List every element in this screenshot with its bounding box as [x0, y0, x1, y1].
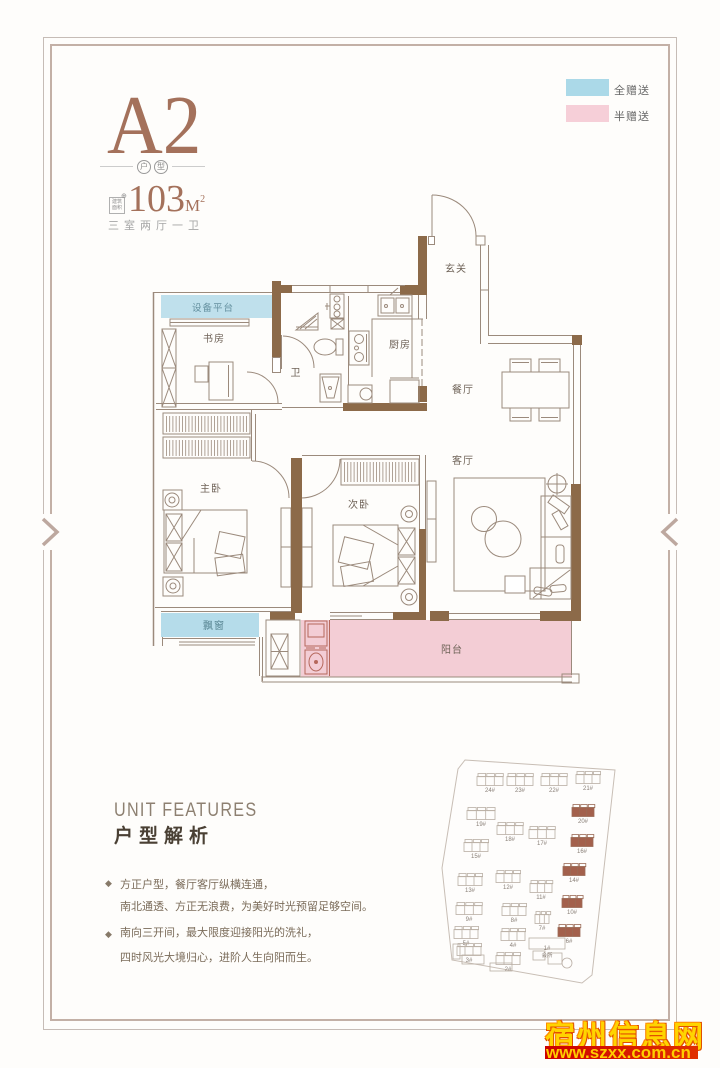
svg-text:4#: 4#: [510, 943, 517, 949]
svg-text:2#: 2#: [505, 967, 512, 973]
svg-text:15#: 15#: [471, 854, 482, 860]
svg-text:19#: 19#: [476, 822, 487, 828]
svg-text:会所: 会所: [541, 951, 553, 959]
svg-text:22#: 22#: [549, 788, 560, 794]
svg-text:8#: 8#: [511, 918, 518, 924]
svg-text:餐厅: 餐厅: [452, 383, 474, 396]
svg-text:主卧: 主卧: [200, 482, 222, 495]
svg-text:飘窗: 飘窗: [203, 619, 225, 632]
svg-text:9#: 9#: [466, 917, 473, 923]
svg-text:16#: 16#: [577, 849, 588, 855]
svg-text:卫: 卫: [291, 368, 302, 379]
svg-text:玄关: 玄关: [445, 262, 467, 275]
svg-text:24#: 24#: [485, 788, 496, 794]
svg-text:20#: 20#: [578, 819, 589, 825]
svg-text:客厅: 客厅: [452, 454, 474, 467]
svg-text:次卧: 次卧: [348, 498, 370, 511]
svg-text:厨房: 厨房: [389, 338, 411, 351]
svg-text:3#: 3#: [466, 958, 473, 964]
svg-text:设备平台: 设备平台: [192, 302, 234, 314]
svg-text:7#: 7#: [539, 926, 546, 932]
svg-text:13#: 13#: [465, 888, 476, 894]
svg-text:17#: 17#: [537, 841, 548, 847]
svg-text:书房: 书房: [203, 332, 225, 345]
svg-text:14#: 14#: [569, 878, 580, 884]
svg-text:6#: 6#: [566, 939, 573, 945]
svg-text:11#: 11#: [536, 895, 546, 901]
svg-text:21#: 21#: [583, 786, 594, 792]
svg-text:10#: 10#: [567, 910, 578, 916]
svg-text:12#: 12#: [503, 885, 514, 891]
svg-text:18#: 18#: [505, 837, 516, 843]
svg-text:阳台: 阳台: [441, 643, 463, 656]
svg-text:23#: 23#: [515, 788, 526, 794]
svg-text:1#: 1#: [544, 946, 551, 952]
